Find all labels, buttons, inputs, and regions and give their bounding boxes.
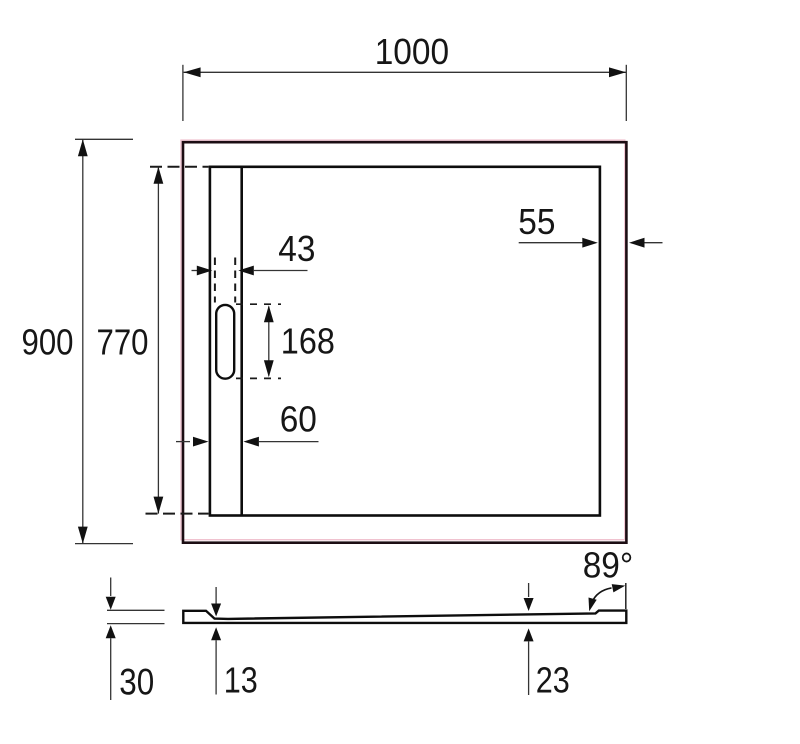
svg-text:1000: 1000 — [375, 31, 449, 72]
svg-text:30: 30 — [119, 662, 154, 703]
svg-text:770: 770 — [96, 322, 148, 363]
svg-text:168: 168 — [281, 322, 335, 362]
svg-text:13: 13 — [224, 661, 258, 701]
svg-text:60: 60 — [280, 399, 317, 440]
svg-text:43: 43 — [278, 229, 315, 270]
svg-text:55: 55 — [518, 202, 555, 243]
svg-text:900: 900 — [21, 322, 73, 363]
svg-text:23: 23 — [536, 661, 570, 701]
svg-text:89°: 89° — [583, 545, 634, 586]
